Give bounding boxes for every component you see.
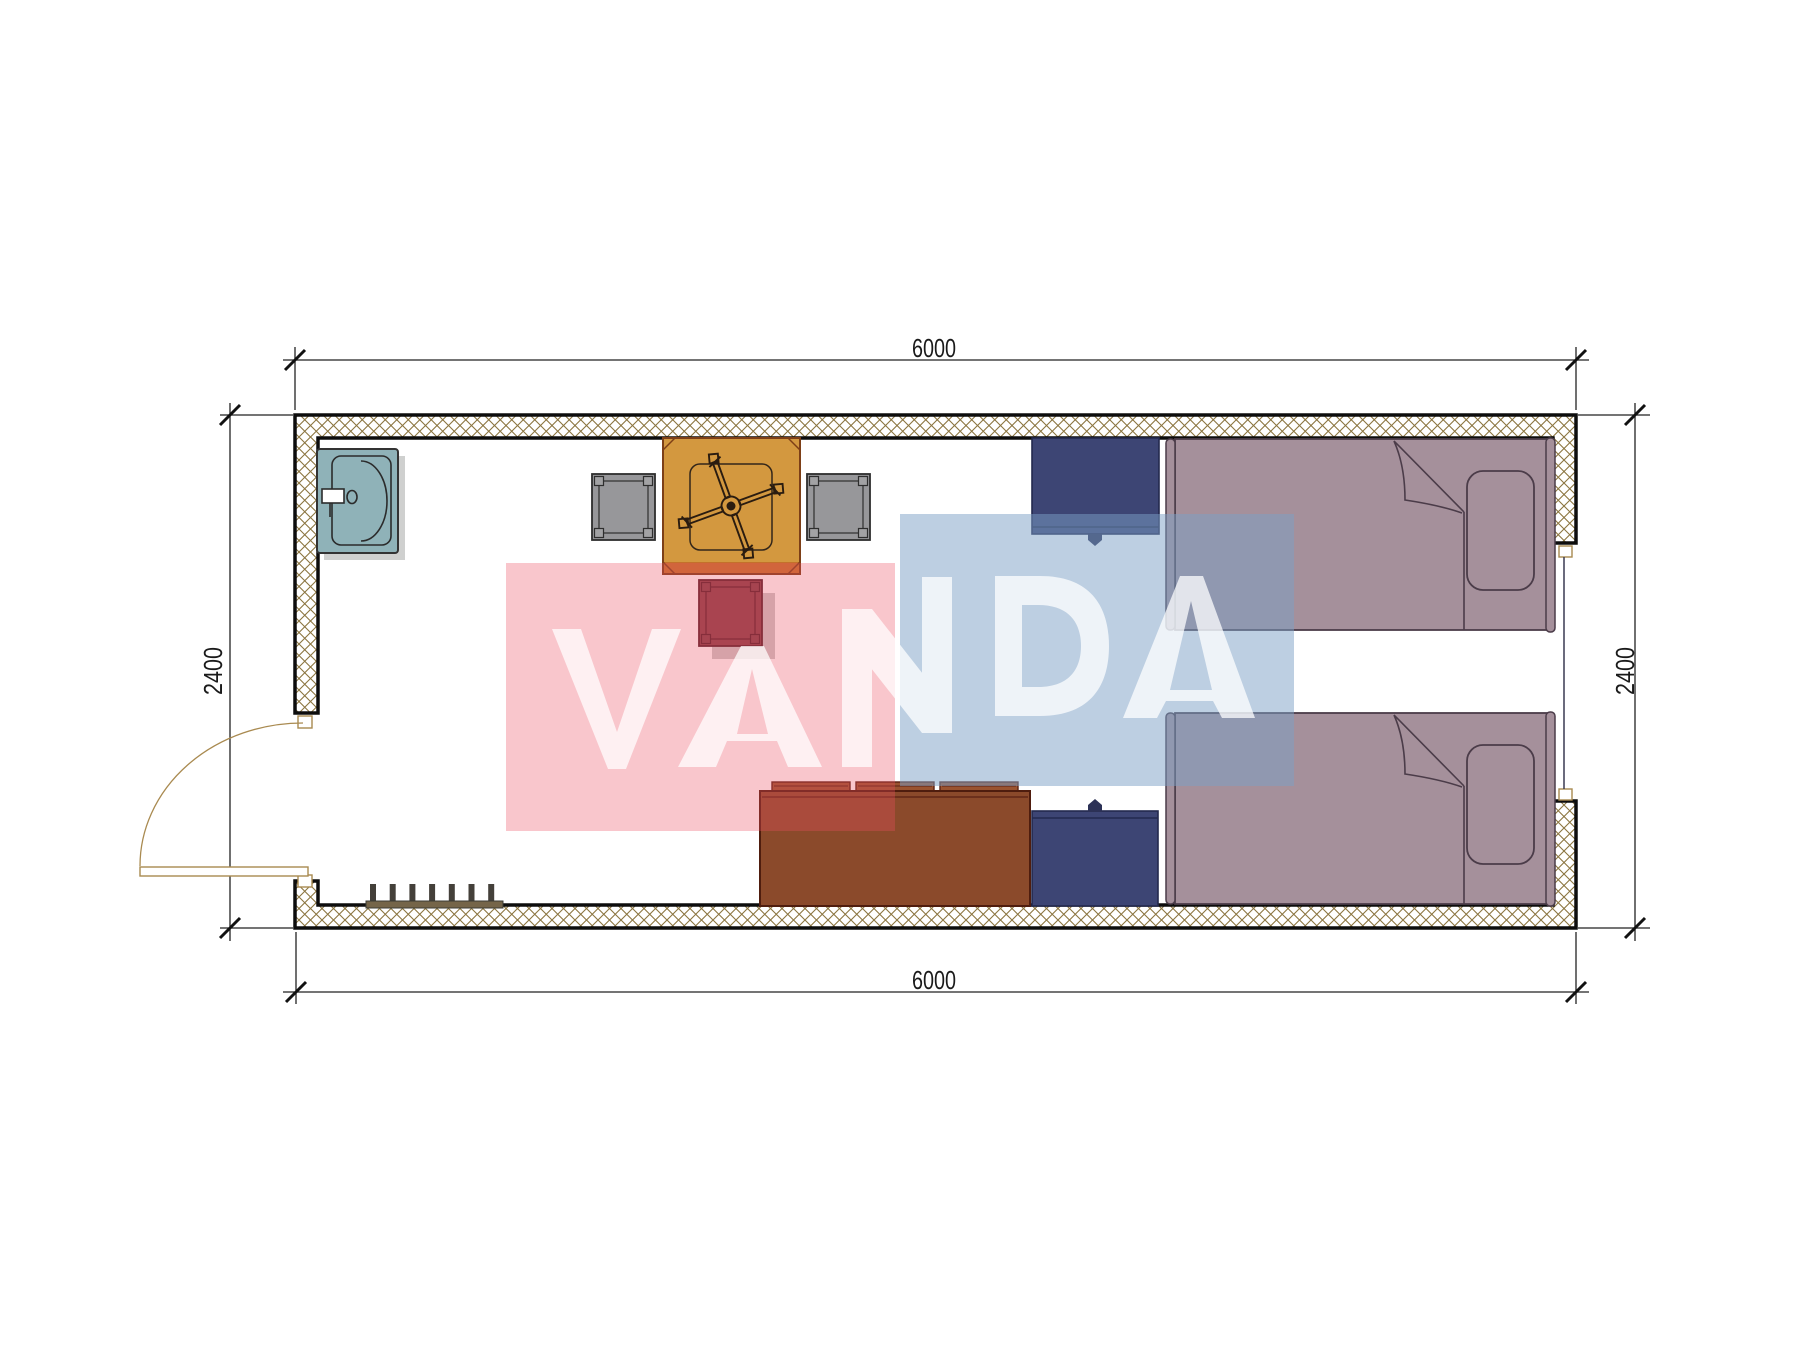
svg-text:6000: 6000 (912, 965, 956, 995)
svg-text:6000: 6000 (912, 333, 956, 363)
svg-text:2400: 2400 (198, 647, 228, 695)
svg-text:2400: 2400 (1610, 647, 1640, 695)
